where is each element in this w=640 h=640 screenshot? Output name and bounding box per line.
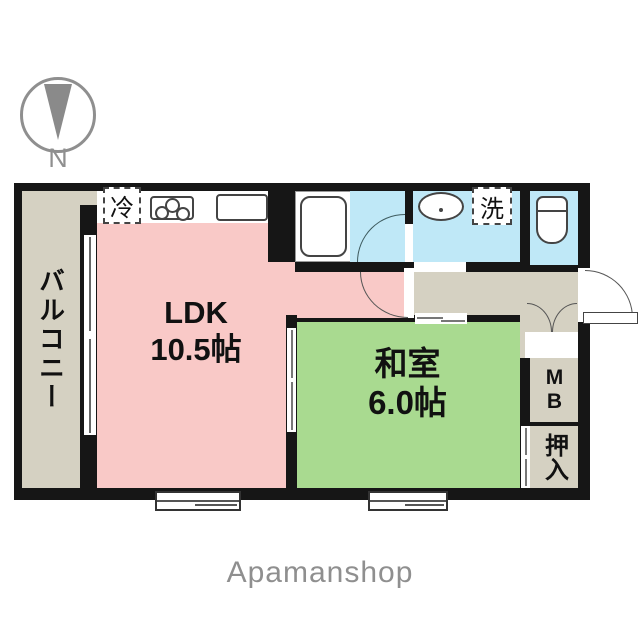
stove-icon [150,196,194,220]
balcony-label: バルコニー [22,191,80,488]
floorplan: 冷 洗 バルコニー LDK 10.5帖 和室 6.0帖 MB 押入 [14,183,590,500]
washitsu-label: 和室 6.0帖 [295,345,520,423]
bifold-left-leaf-icon [527,303,552,332]
meter-box-label: MB [530,358,578,422]
kitchen-bath-wall [268,191,295,262]
ldk-label: LDK 10.5帖 [97,295,295,368]
compass-north-label: N [34,143,82,174]
bifold-right-leaf-icon [552,303,577,332]
right-column-gap [525,332,578,358]
toilet-tank-line-icon [538,210,566,212]
hall-washitsu-sliding-door-icon [415,313,467,324]
bathroom-door-opening [405,224,413,262]
washitsu-south-window-icon [368,491,448,511]
apamanshop-logo: Apamanshop [0,556,640,590]
ldk-south-window-icon [155,491,241,511]
toilet-icon [536,196,568,244]
refrigerator-icon: 冷 [103,187,141,224]
compass-needle-icon [44,84,72,140]
washroom-door-opening [414,262,466,272]
entrance-door-leaf-icon [583,312,638,324]
floorplan-page: N 冷 [0,0,640,640]
closet-label: 押入 [530,426,578,488]
washitsu-name: 和室 [295,345,520,384]
entrance-door-arc-icon [585,270,633,318]
balcony-window-icon [84,235,96,435]
ldk-size: 10.5帖 [97,332,295,369]
stove-burner-icon [155,206,169,220]
entrance-bifold-door-icon [527,303,578,332]
ldk-name: LDK [97,295,295,332]
washbasin-icon [418,192,464,221]
washing-machine-icon: 洗 [472,187,512,225]
stove-burner-icon [176,207,190,221]
kitchen-sink-icon [216,194,268,221]
washitsu-size: 6.0帖 [295,384,520,423]
closet-sliding-door-icon [521,426,530,488]
bathtub-icon [300,196,347,257]
